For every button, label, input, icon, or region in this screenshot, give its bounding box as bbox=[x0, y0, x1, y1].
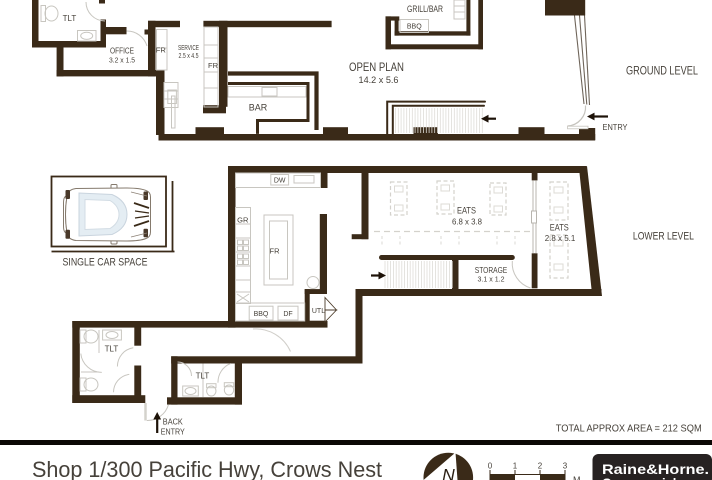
svg-text:BBQ: BBQ bbox=[407, 24, 422, 31]
svg-text:BBQ: BBQ bbox=[254, 311, 269, 318]
svg-text:GROUND LEVEL: GROUND LEVEL bbox=[626, 66, 698, 78]
svg-text:OFFICE: OFFICE bbox=[110, 46, 134, 56]
svg-text:TOTAL APPROX AREA = 212 SQM: TOTAL APPROX AREA = 212 SQM bbox=[556, 423, 702, 435]
svg-text:UTL: UTL bbox=[312, 308, 325, 315]
svg-text:GR: GR bbox=[237, 216, 249, 225]
svg-text:DW: DW bbox=[274, 178, 286, 185]
svg-text:DF: DF bbox=[283, 311, 292, 318]
svg-text:Commercial: Commercial bbox=[602, 476, 676, 480]
svg-text:SERVICE: SERVICE bbox=[178, 43, 199, 52]
svg-text:FR: FR bbox=[270, 247, 281, 256]
svg-text:TLT: TLT bbox=[105, 345, 119, 354]
svg-text:2: 2 bbox=[538, 462, 543, 471]
svg-text:N: N bbox=[442, 465, 455, 480]
svg-text:STORAGE: STORAGE bbox=[475, 265, 508, 275]
svg-text:EATS: EATS bbox=[550, 223, 569, 233]
svg-text:6.8 x 3.8: 6.8 x 3.8 bbox=[452, 218, 483, 227]
svg-text:M: M bbox=[573, 475, 581, 480]
svg-text:TLT: TLT bbox=[196, 372, 210, 381]
svg-text:ENTRY: ENTRY bbox=[161, 427, 185, 437]
svg-text:2.8 x 5.1: 2.8 x 5.1 bbox=[545, 234, 576, 243]
svg-text:EATS: EATS bbox=[457, 206, 476, 216]
svg-text:OPEN PLAN: OPEN PLAN bbox=[349, 62, 404, 74]
svg-text:FR: FR bbox=[156, 46, 167, 55]
svg-text:3.1 x 1.2: 3.1 x 1.2 bbox=[478, 275, 505, 284]
svg-text:SINGLE CAR SPACE: SINGLE CAR SPACE bbox=[63, 257, 148, 269]
svg-text:3.2 x 1.5: 3.2 x 1.5 bbox=[109, 56, 135, 65]
svg-text:FR: FR bbox=[208, 61, 219, 70]
svg-text:1: 1 bbox=[513, 462, 518, 471]
svg-text:Shop 1/300 Pacific Hwy, Crows: Shop 1/300 Pacific Hwy, Crows Nest bbox=[32, 457, 382, 480]
svg-text:BACK: BACK bbox=[163, 417, 183, 427]
svg-text:TLT: TLT bbox=[63, 14, 77, 23]
svg-text:LOWER LEVEL: LOWER LEVEL bbox=[633, 231, 694, 243]
svg-text:GRILL/BAR: GRILL/BAR bbox=[407, 4, 443, 14]
svg-text:3: 3 bbox=[563, 462, 568, 471]
svg-text:14.2 x 5.6: 14.2 x 5.6 bbox=[359, 75, 399, 86]
svg-text:BAR: BAR bbox=[249, 103, 268, 113]
svg-text:2.5 x 4.5: 2.5 x 4.5 bbox=[179, 53, 199, 60]
svg-text:ENTRY: ENTRY bbox=[603, 122, 628, 132]
svg-text:0: 0 bbox=[488, 462, 493, 471]
